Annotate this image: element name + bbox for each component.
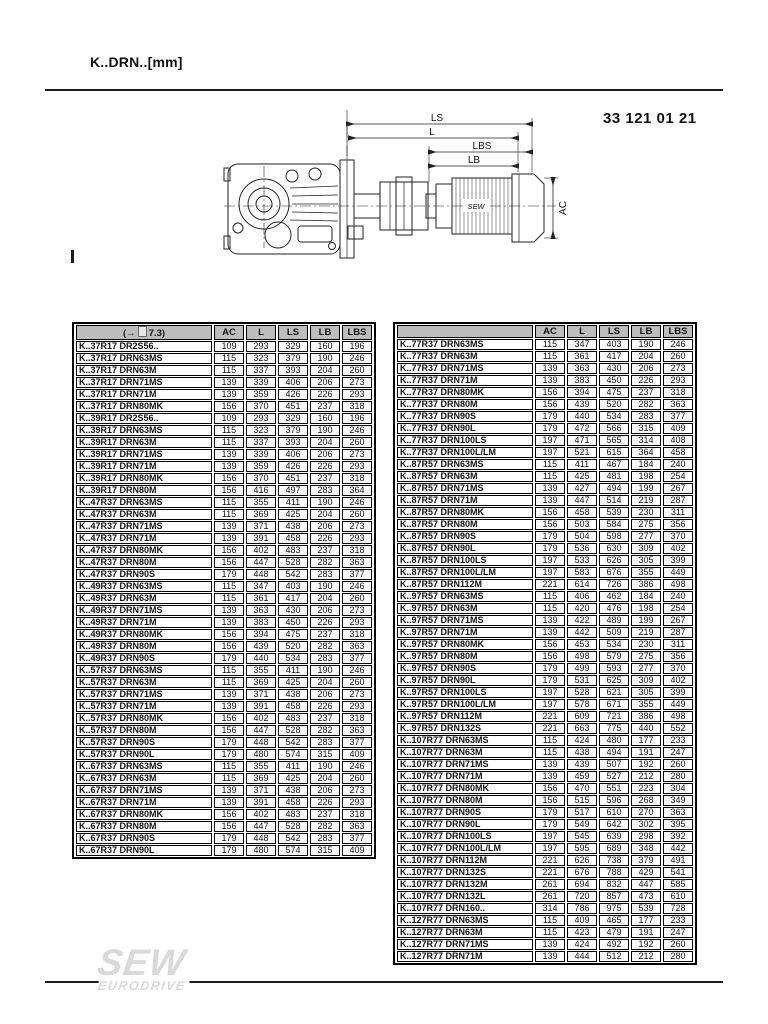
value-cell: 409 <box>663 423 693 434</box>
table-row: K..97R57 DRN112M221609721386498 <box>397 711 693 722</box>
value-cell: 386 <box>631 711 661 722</box>
value-cell: 504 <box>567 531 597 542</box>
model-cell: K..67R37 DRN90L <box>76 845 212 856</box>
value-cell: 448 <box>246 833 276 844</box>
value-cell: 425 <box>278 677 308 688</box>
table-row: K..107R77 DRN100L/LM197595689348442 <box>397 843 693 854</box>
model-cell: K..107R77 DRN71MS <box>397 759 533 770</box>
value-cell: 226 <box>310 533 340 544</box>
value-cell: 857 <box>599 891 629 902</box>
value-cell: 197 <box>535 567 565 578</box>
model-cell: K..107R77 DRN100LS <box>397 831 533 842</box>
value-cell: 179 <box>214 749 244 760</box>
value-cell: 364 <box>631 447 661 458</box>
value-cell: 514 <box>599 495 629 506</box>
value-cell: 275 <box>631 519 661 530</box>
value-cell: 429 <box>631 867 661 878</box>
dimensions-table-left: (→7.3) AC L LS LB LBS K..37R17 DR2S56..1… <box>72 322 376 859</box>
value-cell: 246 <box>342 353 372 364</box>
dim-label-l: L <box>429 127 435 138</box>
value-cell: 246 <box>342 497 372 508</box>
value-cell: 383 <box>246 617 276 628</box>
model-cell: K..87R57 DRN90S <box>397 531 533 542</box>
dimensions-table-right: AC L LS LB LBS K..77R37 DRN63MS115347403… <box>393 322 697 965</box>
value-cell: 476 <box>599 603 629 614</box>
value-cell: 423 <box>567 927 597 938</box>
model-cell: K..39R17 DRN63M <box>76 437 212 448</box>
value-cell: 115 <box>535 471 565 482</box>
table-header-row: (→7.3) AC L LS LB LBS <box>76 325 372 340</box>
value-cell: 438 <box>567 747 597 758</box>
value-cell: 139 <box>535 483 565 494</box>
value-cell: 139 <box>535 771 565 782</box>
value-cell: 406 <box>278 449 308 460</box>
value-cell: 221 <box>535 867 565 878</box>
value-cell: 545 <box>567 831 597 842</box>
value-cell: 309 <box>631 675 661 686</box>
value-cell: 676 <box>599 567 629 578</box>
model-cell: K..87R57 DRN63MS <box>397 459 533 470</box>
value-cell: 551 <box>599 783 629 794</box>
value-cell: 156 <box>214 545 244 556</box>
value-cell: 273 <box>342 605 372 616</box>
value-cell: 283 <box>310 833 340 844</box>
model-cell: K..57R37 DRN71M <box>76 701 212 712</box>
model-cell: K..107R77 DRN90L <box>397 819 533 830</box>
value-cell: 458 <box>278 797 308 808</box>
value-cell: 115 <box>214 509 244 520</box>
value-cell: 190 <box>631 339 661 350</box>
model-cell: K..77R37 DRN80M <box>397 399 533 410</box>
value-cell: 371 <box>246 785 276 796</box>
value-cell: 156 <box>535 651 565 662</box>
table-row: K..77R37 DRN90L179472566315409 <box>397 423 693 434</box>
value-cell: 293 <box>342 389 372 400</box>
value-cell: 459 <box>567 771 597 782</box>
value-cell: 579 <box>599 651 629 662</box>
value-cell: 237 <box>310 545 340 556</box>
value-cell: 260 <box>342 773 372 784</box>
value-cell: 197 <box>535 843 565 854</box>
table-row: K..77R37 DRN100LS197471565314408 <box>397 435 693 446</box>
value-cell: 302 <box>631 819 661 830</box>
table-header-row: AC L LS LB LBS <box>397 325 693 338</box>
value-cell: 198 <box>631 603 661 614</box>
value-cell: 109 <box>214 341 244 352</box>
value-cell: 528 <box>278 821 308 832</box>
table-row: K..97R57 DRN100LS197528621305399 <box>397 687 693 698</box>
value-cell: 472 <box>567 423 597 434</box>
value-cell: 425 <box>278 773 308 784</box>
value-cell: 363 <box>663 807 693 818</box>
model-cell: K..67R37 DRN71MS <box>76 785 212 796</box>
value-cell: 273 <box>342 689 372 700</box>
value-cell: 139 <box>214 701 244 712</box>
value-cell: 788 <box>599 867 629 878</box>
value-cell: 370 <box>663 663 693 674</box>
value-cell: 377 <box>663 411 693 422</box>
col-header-l: L <box>567 325 597 338</box>
value-cell: 449 <box>663 567 693 578</box>
value-cell: 480 <box>599 735 629 746</box>
value-cell: 402 <box>663 543 693 554</box>
value-cell: 246 <box>342 581 372 592</box>
model-cell: K..57R37 DRN71MS <box>76 689 212 700</box>
value-cell: 115 <box>214 581 244 592</box>
title-divider <box>45 89 723 91</box>
value-cell: 621 <box>599 687 629 698</box>
value-cell: 293 <box>342 533 372 544</box>
value-cell: 260 <box>342 677 372 688</box>
value-cell: 574 <box>278 749 308 760</box>
value-cell: 447 <box>631 879 661 890</box>
value-cell: 277 <box>631 531 661 542</box>
value-cell: 293 <box>342 797 372 808</box>
value-cell: 584 <box>599 519 629 530</box>
value-cell: 479 <box>599 927 629 938</box>
model-cell: K..39R17 DRN63MS <box>76 425 212 436</box>
table-row: K..107R77 DRN112M221626738379491 <box>397 855 693 866</box>
value-cell: 246 <box>342 761 372 772</box>
value-cell: 339 <box>246 377 276 388</box>
value-cell: 190 <box>310 665 340 676</box>
value-cell: 517 <box>567 807 597 818</box>
value-cell: 574 <box>278 845 308 856</box>
value-cell: 273 <box>342 377 372 388</box>
value-cell: 237 <box>310 473 340 484</box>
value-cell: 237 <box>310 713 340 724</box>
value-cell: 115 <box>214 773 244 784</box>
value-cell: 497 <box>278 485 308 496</box>
table-row: K..67R37 DRN71M139391458226293 <box>76 797 372 808</box>
value-cell: 786 <box>567 903 597 914</box>
value-cell: 458 <box>567 507 597 518</box>
value-cell: 260 <box>342 365 372 376</box>
value-cell: 694 <box>567 879 597 890</box>
value-cell: 283 <box>310 485 340 496</box>
value-cell: 481 <box>599 471 629 482</box>
table-row: K..37R17 DRN80MK156370451237318 <box>76 401 372 412</box>
value-cell: 406 <box>567 591 597 602</box>
value-cell: 370 <box>246 401 276 412</box>
value-cell: 610 <box>599 807 629 818</box>
model-cell: K..57R37 DRN90S <box>76 737 212 748</box>
value-cell: 499 <box>567 663 597 674</box>
value-cell: 273 <box>342 449 372 460</box>
value-cell: 226 <box>310 461 340 472</box>
value-cell: 298 <box>631 831 661 842</box>
value-cell: 403 <box>278 581 308 592</box>
value-cell: 593 <box>599 663 629 674</box>
value-cell: 270 <box>631 807 661 818</box>
value-cell: 528 <box>278 725 308 736</box>
value-cell: 614 <box>567 579 597 590</box>
col-header-lb: LB <box>310 325 340 340</box>
value-cell: 260 <box>342 593 372 604</box>
table-row: K..37R17 DRN71M139359426226293 <box>76 389 372 400</box>
value-cell: 395 <box>663 819 693 830</box>
table-row: K..57R37 DRN71M139391458226293 <box>76 701 372 712</box>
value-cell: 199 <box>631 615 661 626</box>
model-cell: K..39R17 DR2S56.. <box>76 413 212 424</box>
value-cell: 425 <box>278 509 308 520</box>
table-row: K..87R57 DRN63M115425481198254 <box>397 471 693 482</box>
table-row: K..57R37 DRN63MS115355411190246 <box>76 665 372 676</box>
model-cell: K..107R77 DRN90S <box>397 807 533 818</box>
value-cell: 329 <box>278 413 308 424</box>
value-cell: 260 <box>342 509 372 520</box>
value-cell: 115 <box>535 591 565 602</box>
value-cell: 451 <box>278 473 308 484</box>
model-cell: K..77R37 DRN71MS <box>397 363 533 374</box>
value-cell: 197 <box>535 687 565 698</box>
value-cell: 424 <box>567 939 597 950</box>
value-cell: 542 <box>278 737 308 748</box>
table-row: K..77R37 DRN100L/LM197521615364458 <box>397 447 693 458</box>
value-cell: 738 <box>599 855 629 866</box>
col-header-ac: AC <box>214 325 244 340</box>
value-cell: 439 <box>567 399 597 410</box>
value-cell: 426 <box>278 389 308 400</box>
value-cell: 273 <box>342 521 372 532</box>
model-cell: K..97R57 DRN80M <box>397 651 533 662</box>
value-cell: 439 <box>246 641 276 652</box>
value-cell: 399 <box>663 687 693 698</box>
value-cell: 411 <box>567 459 597 470</box>
value-cell: 206 <box>310 689 340 700</box>
value-cell: 315 <box>631 423 661 434</box>
value-cell: 115 <box>535 603 565 614</box>
value-cell: 449 <box>663 699 693 710</box>
value-cell: 115 <box>214 761 244 772</box>
ref-prefix: (→ <box>123 328 136 339</box>
value-cell: 212 <box>631 771 661 782</box>
value-cell: 489 <box>599 615 629 626</box>
value-cell: 470 <box>567 783 597 794</box>
value-cell: 115 <box>214 497 244 508</box>
value-cell: 539 <box>631 903 661 914</box>
value-cell: 309 <box>631 543 661 554</box>
value-cell: 411 <box>278 761 308 772</box>
col-header-lbs: LBS <box>663 325 693 338</box>
table-row: K..107R77 DRN63M115438494191247 <box>397 747 693 758</box>
value-cell: 204 <box>310 593 340 604</box>
value-cell: 156 <box>214 641 244 652</box>
value-cell: 293 <box>246 341 276 352</box>
value-cell: 531 <box>567 675 597 686</box>
value-cell: 832 <box>599 879 629 890</box>
value-cell: 337 <box>246 365 276 376</box>
table-row: K..49R37 DRN71M139383450226293 <box>76 617 372 628</box>
value-cell: 356 <box>663 519 693 530</box>
model-cell: K..87R57 DRN63M <box>397 471 533 482</box>
value-cell: 179 <box>535 411 565 422</box>
value-cell: 226 <box>310 389 340 400</box>
value-cell: 363 <box>663 399 693 410</box>
table-row: K..49R37 DRN80MK156394475237318 <box>76 629 372 640</box>
value-cell: 671 <box>599 699 629 710</box>
value-cell: 240 <box>663 459 693 470</box>
value-cell: 139 <box>214 389 244 400</box>
value-cell: 471 <box>567 435 597 446</box>
value-cell: 139 <box>535 759 565 770</box>
document-number: 33 121 01 21 <box>603 110 697 127</box>
value-cell: 318 <box>663 387 693 398</box>
value-cell: 676 <box>567 867 597 878</box>
value-cell: 233 <box>663 735 693 746</box>
value-cell: 190 <box>310 497 340 508</box>
table-row: K..87R57 DRN80MK156458539230311 <box>397 507 693 518</box>
value-cell: 318 <box>342 545 372 556</box>
value-cell: 206 <box>631 363 661 374</box>
table-row: K..49R37 DRN80M156439520282363 <box>76 641 372 652</box>
value-cell: 440 <box>246 653 276 664</box>
table-row: K..57R37 DRN63M115369425204260 <box>76 677 372 688</box>
table-row: K..57R37 DRN80MK156402483237318 <box>76 713 372 724</box>
value-cell: 520 <box>278 641 308 652</box>
value-cell: 246 <box>342 425 372 436</box>
value-cell: 440 <box>567 411 597 422</box>
value-cell: 528 <box>567 687 597 698</box>
model-cell: K..57R37 DRN63M <box>76 677 212 688</box>
value-cell: 283 <box>310 569 340 580</box>
value-cell: 139 <box>214 785 244 796</box>
value-cell: 237 <box>310 629 340 640</box>
model-cell: K..49R37 DRN80M <box>76 641 212 652</box>
value-cell: 311 <box>663 639 693 650</box>
value-cell: 204 <box>310 677 340 688</box>
table-row: K..87R57 DRN100L/LM197583676355449 <box>397 567 693 578</box>
model-cell: K..87R57 DRN112M <box>397 579 533 590</box>
model-cell: K..57R37 DRN80M <box>76 725 212 736</box>
value-cell: 467 <box>599 459 629 470</box>
model-cell: K..87R57 DRN100L/LM <box>397 567 533 578</box>
value-cell: 139 <box>535 627 565 638</box>
value-cell: 626 <box>567 855 597 866</box>
value-cell: 261 <box>535 891 565 902</box>
model-cell: K..107R77 DRN132S <box>397 867 533 878</box>
value-cell: 363 <box>342 641 372 652</box>
table-row: K..97R57 DRN80M156498579275356 <box>397 651 693 662</box>
model-cell: K..87R57 DRN100LS <box>397 555 533 566</box>
value-cell: 438 <box>278 521 308 532</box>
value-cell: 184 <box>631 591 661 602</box>
value-cell: 293 <box>342 617 372 628</box>
value-cell: 293 <box>246 413 276 424</box>
model-cell: K..77R37 DRN90S <box>397 411 533 422</box>
model-cell: K..107R77 DRN80M <box>397 795 533 806</box>
value-cell: 156 <box>535 519 565 530</box>
value-cell: 355 <box>246 497 276 508</box>
value-cell: 260 <box>342 437 372 448</box>
value-cell: 197 <box>535 447 565 458</box>
table-row: K..107R77 DRN71M139459527212280 <box>397 771 693 782</box>
value-cell: 552 <box>663 723 693 734</box>
table-row: K..77R37 DRN63M115361417204260 <box>397 351 693 362</box>
value-cell: 139 <box>535 375 565 386</box>
table-row: K..47R37 DRN80M156447528282363 <box>76 557 372 568</box>
value-cell: 273 <box>342 785 372 796</box>
value-cell: 642 <box>599 819 629 830</box>
value-cell: 293 <box>342 701 372 712</box>
value-cell: 583 <box>567 567 597 578</box>
col-header-l: L <box>246 325 276 340</box>
value-cell: 363 <box>342 725 372 736</box>
value-cell: 534 <box>599 411 629 422</box>
value-cell: 422 <box>567 615 597 626</box>
value-cell: 282 <box>310 821 340 832</box>
value-cell: 156 <box>214 401 244 412</box>
value-cell: 379 <box>278 353 308 364</box>
value-cell: 371 <box>246 521 276 532</box>
value-cell: 515 <box>567 795 597 806</box>
table-row: K..47R37 DRN71M139391458226293 <box>76 533 372 544</box>
value-cell: 115 <box>214 665 244 676</box>
value-cell: 348 <box>631 843 661 854</box>
value-cell: 221 <box>535 855 565 866</box>
value-cell: 377 <box>342 653 372 664</box>
value-cell: 447 <box>246 821 276 832</box>
table-row: K..57R37 DRN90L179480574315409 <box>76 749 372 760</box>
model-cell: K..49R37 DRN63MS <box>76 581 212 592</box>
value-cell: 160 <box>310 413 340 424</box>
section-mark <box>71 250 74 263</box>
value-cell: 237 <box>631 387 661 398</box>
value-cell: 458 <box>663 447 693 458</box>
value-cell: 221 <box>535 723 565 734</box>
value-cell: 399 <box>663 555 693 566</box>
table-row: K..67R37 DRN63M115369425204260 <box>76 773 372 784</box>
model-cell: K..39R17 DRN80M <box>76 485 212 496</box>
value-cell: 566 <box>599 423 629 434</box>
table-row: K..49R37 DRN71MS139363430206273 <box>76 605 372 616</box>
table-row: K..107R77 DRN80M156515596268349 <box>397 795 693 806</box>
value-cell: 115 <box>214 437 244 448</box>
model-cell: K..87R57 DRN71MS <box>397 483 533 494</box>
value-cell: 438 <box>278 785 308 796</box>
model-cell: K..77R37 DRN71M <box>397 375 533 386</box>
value-cell: 626 <box>599 555 629 566</box>
motor-brand-label: SEW <box>467 202 485 211</box>
value-cell: 115 <box>214 353 244 364</box>
model-cell: K..107R77 DRN80MK <box>397 783 533 794</box>
model-cell: K..37R17 DRN71MS <box>76 377 212 388</box>
value-cell: 179 <box>214 833 244 844</box>
value-cell: 156 <box>535 507 565 518</box>
value-cell: 204 <box>631 351 661 362</box>
value-cell: 726 <box>599 579 629 590</box>
model-cell: K..47R37 DRN71M <box>76 533 212 544</box>
value-cell: 975 <box>599 903 629 914</box>
table-row: K..39R17 DRN71M139359426226293 <box>76 461 372 472</box>
model-cell: K..57R37 DRN63MS <box>76 665 212 676</box>
table-row: K..47R37 DRN63M115369425204260 <box>76 509 372 520</box>
value-cell: 596 <box>599 795 629 806</box>
value-cell: 139 <box>535 615 565 626</box>
table-row: K..107R77 DRN63MS115424480177233 <box>397 735 693 746</box>
value-cell: 462 <box>599 591 629 602</box>
model-cell: K..107R77 DRN63M <box>397 747 533 758</box>
value-cell: 156 <box>535 639 565 650</box>
model-cell: K..57R37 DRN90L <box>76 749 212 760</box>
value-cell: 160 <box>310 341 340 352</box>
table-row: K..77R37 DRN71MS139363430206273 <box>397 363 693 374</box>
model-cell: K..97R57 DRN63MS <box>397 591 533 602</box>
value-cell: 442 <box>663 843 693 854</box>
value-cell: 329 <box>278 341 308 352</box>
value-cell: 406 <box>278 377 308 388</box>
value-cell: 480 <box>246 749 276 760</box>
